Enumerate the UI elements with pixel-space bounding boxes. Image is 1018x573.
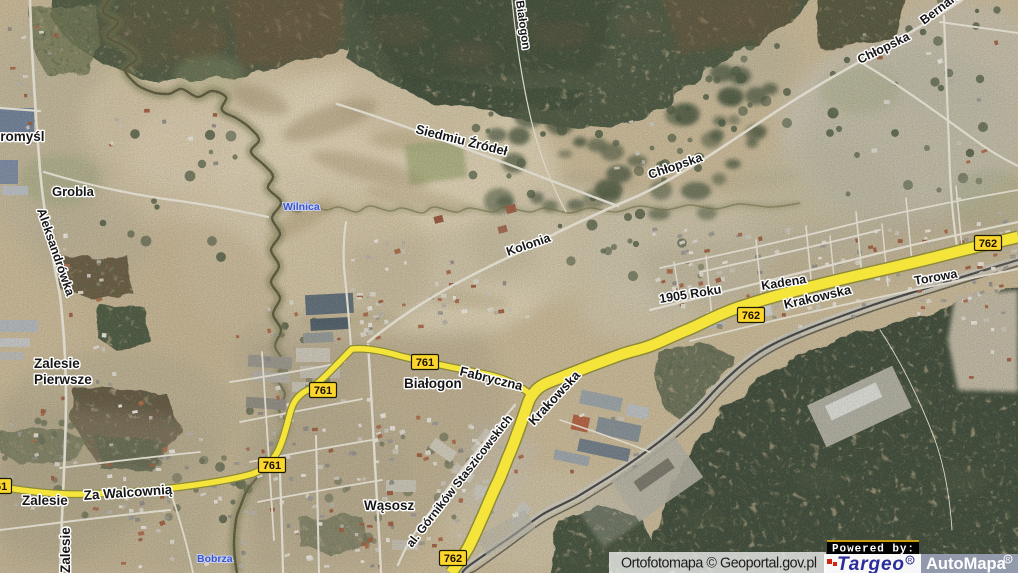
- svg-text:762: 762: [979, 238, 997, 250]
- svg-text:Bobrza: Bobrza: [197, 553, 233, 565]
- svg-text:Zalesie: Zalesie: [58, 527, 73, 573]
- svg-text:Targeo: Targeo: [837, 554, 904, 573]
- svg-text:bromyśl: bromyśl: [0, 129, 45, 144]
- svg-text:761: 761: [416, 357, 434, 369]
- svg-text:AutoMapa: AutoMapa: [926, 555, 1007, 573]
- svg-text:761: 761: [263, 460, 281, 472]
- svg-text:Białogon: Białogon: [404, 376, 462, 391]
- svg-text:Zalesie: Zalesie: [22, 493, 68, 508]
- svg-text:R: R: [908, 559, 913, 565]
- svg-text:Ortofotomapa © Geoportal.gov.p: Ortofotomapa © Geoportal.gov.pl: [621, 556, 817, 572]
- svg-text:Pierwsze: Pierwsze: [34, 372, 92, 387]
- svg-text:Wilnica: Wilnica: [283, 201, 320, 213]
- svg-text:Grobla: Grobla: [52, 184, 95, 199]
- svg-text:762: 762: [742, 310, 760, 322]
- svg-text:Zalesie: Zalesie: [34, 356, 80, 371]
- svg-text:761: 761: [0, 481, 7, 493]
- svg-text:R: R: [1006, 558, 1011, 564]
- svg-text:762: 762: [444, 553, 462, 565]
- svg-text:Wąsosz: Wąsosz: [364, 498, 415, 513]
- svg-text:761: 761: [314, 385, 332, 397]
